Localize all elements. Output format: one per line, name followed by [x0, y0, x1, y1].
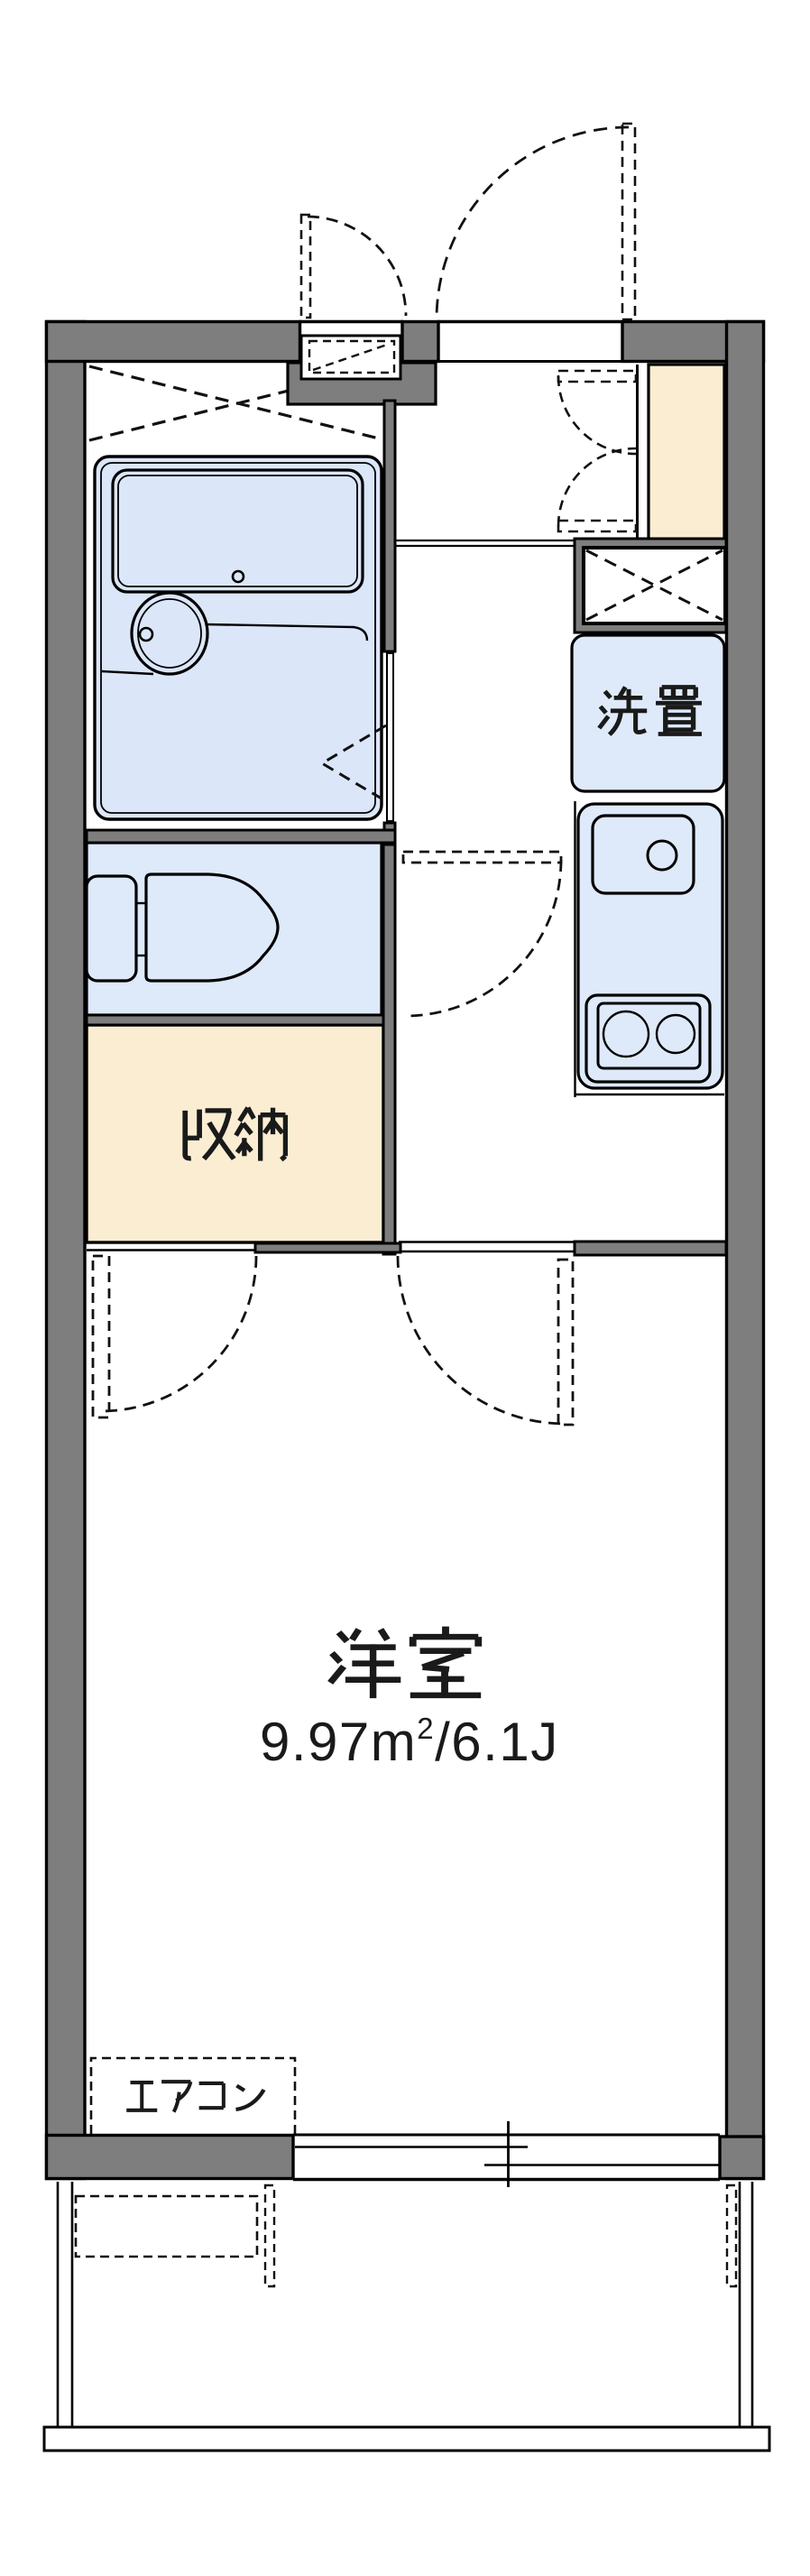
svg-text:9.97m2/6.1J: 9.97m2/6.1J: [260, 1712, 559, 1772]
